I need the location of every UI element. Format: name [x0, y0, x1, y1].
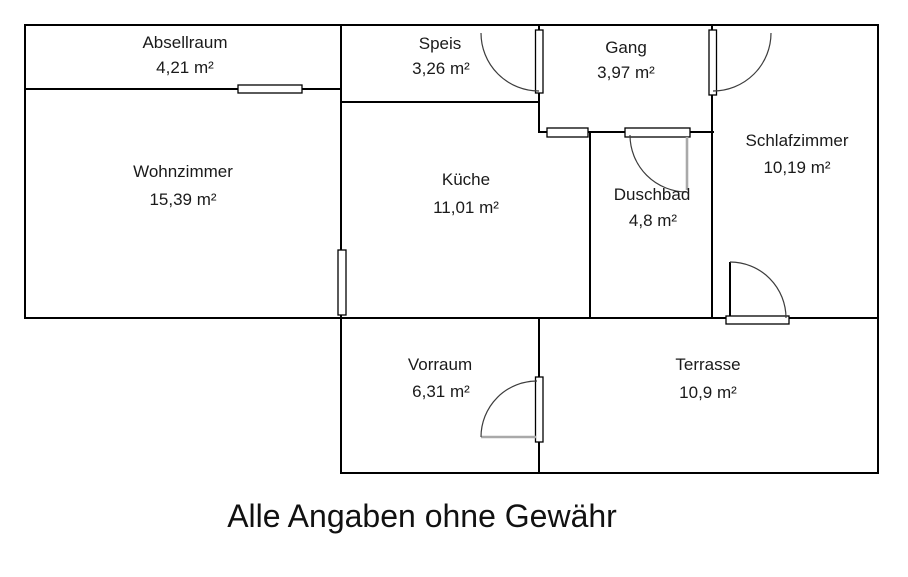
- door-gang-jamb: [709, 30, 717, 95]
- room-area-schlafzimmer: 10,19 m²: [763, 158, 830, 177]
- door-speis-jamb: [536, 30, 544, 93]
- room-name-kueche: Küche: [442, 170, 490, 189]
- room-name-vorraum: Vorraum: [408, 355, 472, 374]
- windows: [238, 85, 588, 315]
- door-speis: [481, 30, 543, 93]
- window-kueche-gang: [547, 128, 588, 137]
- room-name-schlafzimmer: Schlafzimmer: [746, 131, 849, 150]
- door-vorraum-arc: [481, 381, 537, 437]
- room-area-duschbad: 4,8 m²: [629, 211, 678, 230]
- room-area-wohnzimmer: 15,39 m²: [149, 190, 216, 209]
- door-speis-arc: [481, 33, 539, 91]
- room-area-terrasse: 10,9 m²: [679, 383, 737, 402]
- walls: [24, 24, 879, 474]
- room-area-speis: 3,26 m²: [412, 59, 470, 78]
- room-name-absellraum: Absellraum: [142, 33, 227, 52]
- disclaimer-caption: Alle Angaben ohne Gewähr: [227, 498, 617, 534]
- door-vorraum-jamb: [536, 377, 544, 442]
- door-duschbad-lintel: [625, 128, 690, 137]
- room-name-speis: Speis: [419, 34, 462, 53]
- room-area-vorraum: 6,31 m²: [412, 382, 470, 401]
- door-gang: [709, 30, 771, 95]
- door-schlafzimmer-threshold: [726, 316, 789, 324]
- door-gang-arc: [713, 33, 771, 91]
- floorplan-page: Absellraum 4,21 m² Speis 3,26 m² Gang 3,…: [0, 0, 908, 577]
- window-absellraum: [238, 85, 302, 93]
- door-duschbad: [625, 128, 690, 192]
- room-name-gang: Gang: [605, 38, 647, 57]
- room-name-terrasse: Terrasse: [675, 355, 740, 374]
- door-duschbad-arc: [630, 135, 687, 192]
- door-vorraum: [481, 377, 543, 442]
- room-area-kueche: 11,01 m²: [433, 198, 499, 217]
- room-name-wohnzimmer: Wohnzimmer: [133, 162, 233, 181]
- floorplan-drawing: Absellraum 4,21 m² Speis 3,26 m² Gang 3,…: [0, 0, 908, 577]
- window-wohnzimmer-kueche: [338, 250, 346, 315]
- room-name-duschbad: Duschbad: [614, 185, 691, 204]
- door-schlafzimmer-arc: [730, 262, 786, 318]
- room-area-absellraum: 4,21 m²: [156, 58, 214, 77]
- room-area-gang: 3,97 m²: [597, 63, 655, 82]
- door-schlafzimmer: [726, 262, 789, 324]
